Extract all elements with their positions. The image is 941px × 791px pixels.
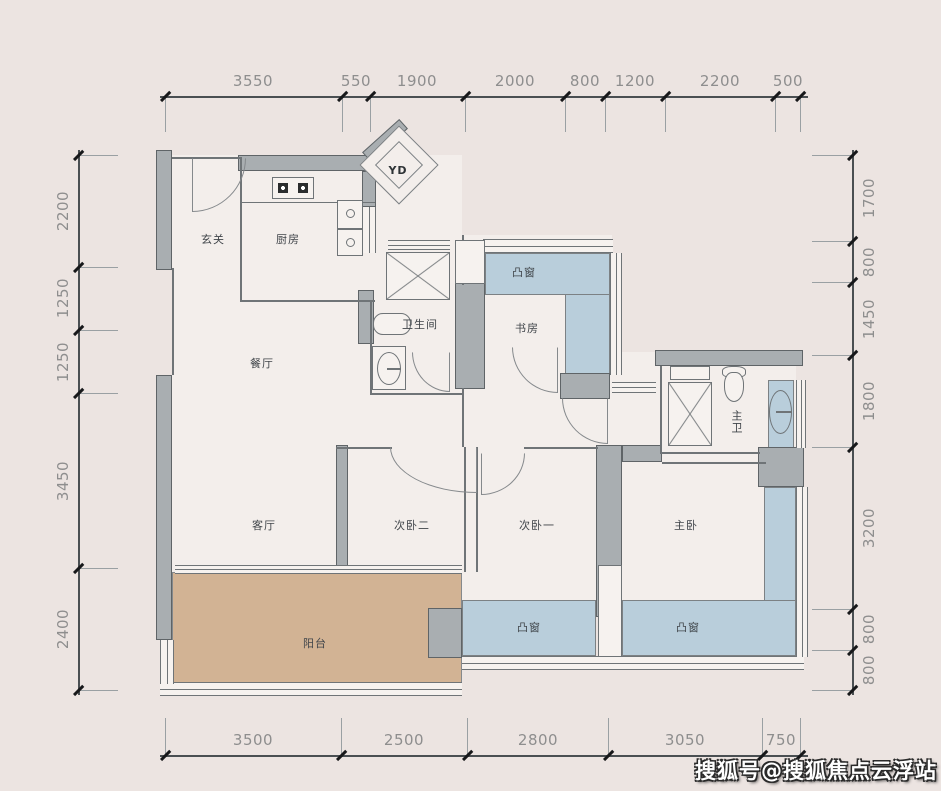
dim-line bbox=[852, 150, 854, 695]
room-label-bedroom2: 次卧二 bbox=[382, 517, 442, 531]
window-frame bbox=[610, 253, 622, 375]
stove-icon bbox=[272, 177, 314, 199]
dim-extension-line bbox=[342, 97, 343, 132]
thin-wall-line bbox=[462, 388, 464, 447]
dim-extension-line bbox=[812, 447, 852, 448]
room-label-bay-window-top: 凸窗 bbox=[494, 264, 554, 278]
wall-segment bbox=[758, 447, 804, 487]
wall-segment bbox=[428, 608, 462, 658]
window-frame bbox=[362, 207, 376, 253]
thin-wall-line bbox=[662, 462, 766, 464]
dim-label: 1250 bbox=[54, 340, 70, 384]
floor-plan-screenshot: 3550 550 1900 2000 800 1200 2200 500 220… bbox=[0, 0, 941, 791]
room-label-bedroom1: 次卧一 bbox=[507, 517, 567, 531]
wall-segment bbox=[560, 373, 610, 399]
dim-extension-line bbox=[78, 155, 118, 156]
dim-label: 800 bbox=[860, 607, 876, 651]
dim-extension-line bbox=[812, 355, 852, 356]
kitchen-sink-icon bbox=[337, 200, 363, 256]
bay-window-right-vertical bbox=[764, 487, 796, 601]
thin-wall-line bbox=[524, 447, 598, 449]
dim-label: 3050 bbox=[655, 731, 715, 749]
thin-wall-line bbox=[336, 447, 392, 449]
dim-label: 750 bbox=[751, 731, 811, 749]
room-label-balcony: 阳台 bbox=[285, 635, 345, 649]
dim-extension-line bbox=[812, 650, 852, 651]
thin-wall-line bbox=[370, 393, 462, 395]
stove-burner-icon bbox=[298, 183, 308, 193]
dim-line bbox=[160, 96, 808, 98]
basin-faucet-icon bbox=[776, 411, 792, 413]
dim-label: 1200 bbox=[605, 72, 665, 90]
wall-segment bbox=[336, 445, 348, 572]
dim-extension-line bbox=[465, 97, 466, 132]
balcony-area bbox=[172, 572, 462, 684]
dim-extension-line bbox=[608, 718, 609, 755]
dim-extension-line bbox=[78, 690, 118, 691]
dim-extension-line bbox=[78, 568, 118, 569]
sink-divider bbox=[338, 228, 362, 230]
dim-extension-line bbox=[370, 97, 371, 132]
room-label-master-bathroom: 主卫 bbox=[728, 402, 744, 442]
dim-extension-line bbox=[78, 393, 118, 394]
washbasin-icon bbox=[372, 346, 406, 390]
stove-burner-icon bbox=[278, 183, 288, 193]
dim-label: 1900 bbox=[387, 72, 447, 90]
window-frame bbox=[483, 239, 613, 253]
dim-label: 1250 bbox=[54, 276, 70, 320]
dim-label: 3200 bbox=[860, 506, 876, 550]
dim-label: 550 bbox=[326, 72, 386, 90]
thin-wall-line bbox=[660, 452, 760, 454]
dim-extension-line bbox=[165, 718, 166, 755]
window-frame bbox=[796, 487, 808, 657]
dim-label: 2200 bbox=[690, 72, 750, 90]
dim-extension-line bbox=[812, 609, 852, 610]
duct-shaft bbox=[598, 565, 622, 657]
dim-extension-line bbox=[812, 241, 852, 242]
dim-extension-line bbox=[467, 718, 468, 755]
room-label-study: 书房 bbox=[497, 320, 557, 334]
dim-label: 1450 bbox=[860, 297, 876, 341]
dim-label: 800 bbox=[860, 648, 876, 692]
dim-extension-line bbox=[565, 97, 566, 132]
dim-extension-line bbox=[665, 97, 666, 132]
bath-shelf bbox=[670, 366, 710, 380]
window-frame bbox=[160, 640, 174, 684]
room-label-bathroom: 卫生间 bbox=[390, 316, 450, 330]
dim-extension-line bbox=[165, 97, 166, 132]
dim-extension-line bbox=[812, 690, 852, 691]
dim-label: 1800 bbox=[860, 379, 876, 423]
dim-extension-line bbox=[812, 282, 852, 283]
wall-segment bbox=[358, 290, 374, 344]
dim-line bbox=[78, 150, 80, 695]
watermark-text: 搜狐号@搜狐焦点云浮站 bbox=[695, 755, 937, 785]
wall-segment bbox=[622, 445, 662, 462]
wall-segment bbox=[238, 155, 378, 171]
bay-window-top-vertical bbox=[565, 294, 610, 375]
room-label-entry: 玄关 bbox=[183, 231, 243, 245]
dim-label: 2500 bbox=[374, 731, 434, 749]
dim-label: 2200 bbox=[54, 189, 70, 233]
dim-label: 3550 bbox=[223, 72, 283, 90]
room-label-bay-window-bottom-left: 凸窗 bbox=[499, 619, 559, 633]
dim-label: 800 bbox=[860, 240, 876, 284]
dim-label: 3500 bbox=[223, 731, 283, 749]
wall-segment bbox=[655, 350, 803, 366]
dim-extension-line bbox=[78, 267, 118, 268]
duct-shaft bbox=[455, 240, 485, 284]
room-label-kitchen: 厨房 bbox=[258, 231, 318, 245]
window-frame bbox=[796, 380, 806, 448]
room-label-master-bedroom: 主卧 bbox=[656, 517, 716, 531]
dim-label: 500 bbox=[758, 72, 818, 90]
wall-segment bbox=[156, 150, 172, 270]
window-frame bbox=[160, 682, 462, 696]
dim-extension-line bbox=[605, 97, 606, 132]
dim-label: 3450 bbox=[54, 459, 70, 503]
sink-drain-icon bbox=[346, 238, 355, 247]
wall-segment bbox=[455, 283, 485, 389]
dim-extension-line bbox=[800, 97, 801, 132]
dim-label: 2400 bbox=[54, 607, 70, 651]
dim-extension-line bbox=[341, 718, 342, 755]
shower-icon bbox=[668, 382, 712, 446]
dim-label: 1700 bbox=[860, 176, 876, 220]
wall-segment bbox=[156, 375, 172, 640]
room-label-living: 客厅 bbox=[234, 517, 294, 531]
window-frame bbox=[462, 656, 804, 670]
room-label-dining: 餐厅 bbox=[232, 355, 292, 369]
thin-wall-line bbox=[660, 366, 662, 454]
shower-icon bbox=[386, 252, 450, 300]
room-label-bay-window-bottom-right: 凸窗 bbox=[658, 619, 718, 633]
dim-extension-line bbox=[78, 330, 118, 331]
dim-label: 2800 bbox=[508, 731, 568, 749]
basin-faucet-icon bbox=[387, 368, 401, 370]
sink-drain-icon bbox=[346, 209, 355, 218]
thin-wall-line bbox=[172, 268, 174, 375]
window-frame bbox=[388, 240, 450, 250]
toilet-bowl-icon bbox=[724, 372, 744, 402]
dim-extension-line bbox=[812, 155, 852, 156]
dim-label: 2000 bbox=[485, 72, 545, 90]
window-frame bbox=[612, 382, 656, 393]
thin-wall-line bbox=[240, 300, 375, 302]
window-frame-sliding-door bbox=[175, 565, 462, 574]
dim-extension-line bbox=[775, 97, 776, 132]
yd-label: YD bbox=[375, 164, 421, 178]
